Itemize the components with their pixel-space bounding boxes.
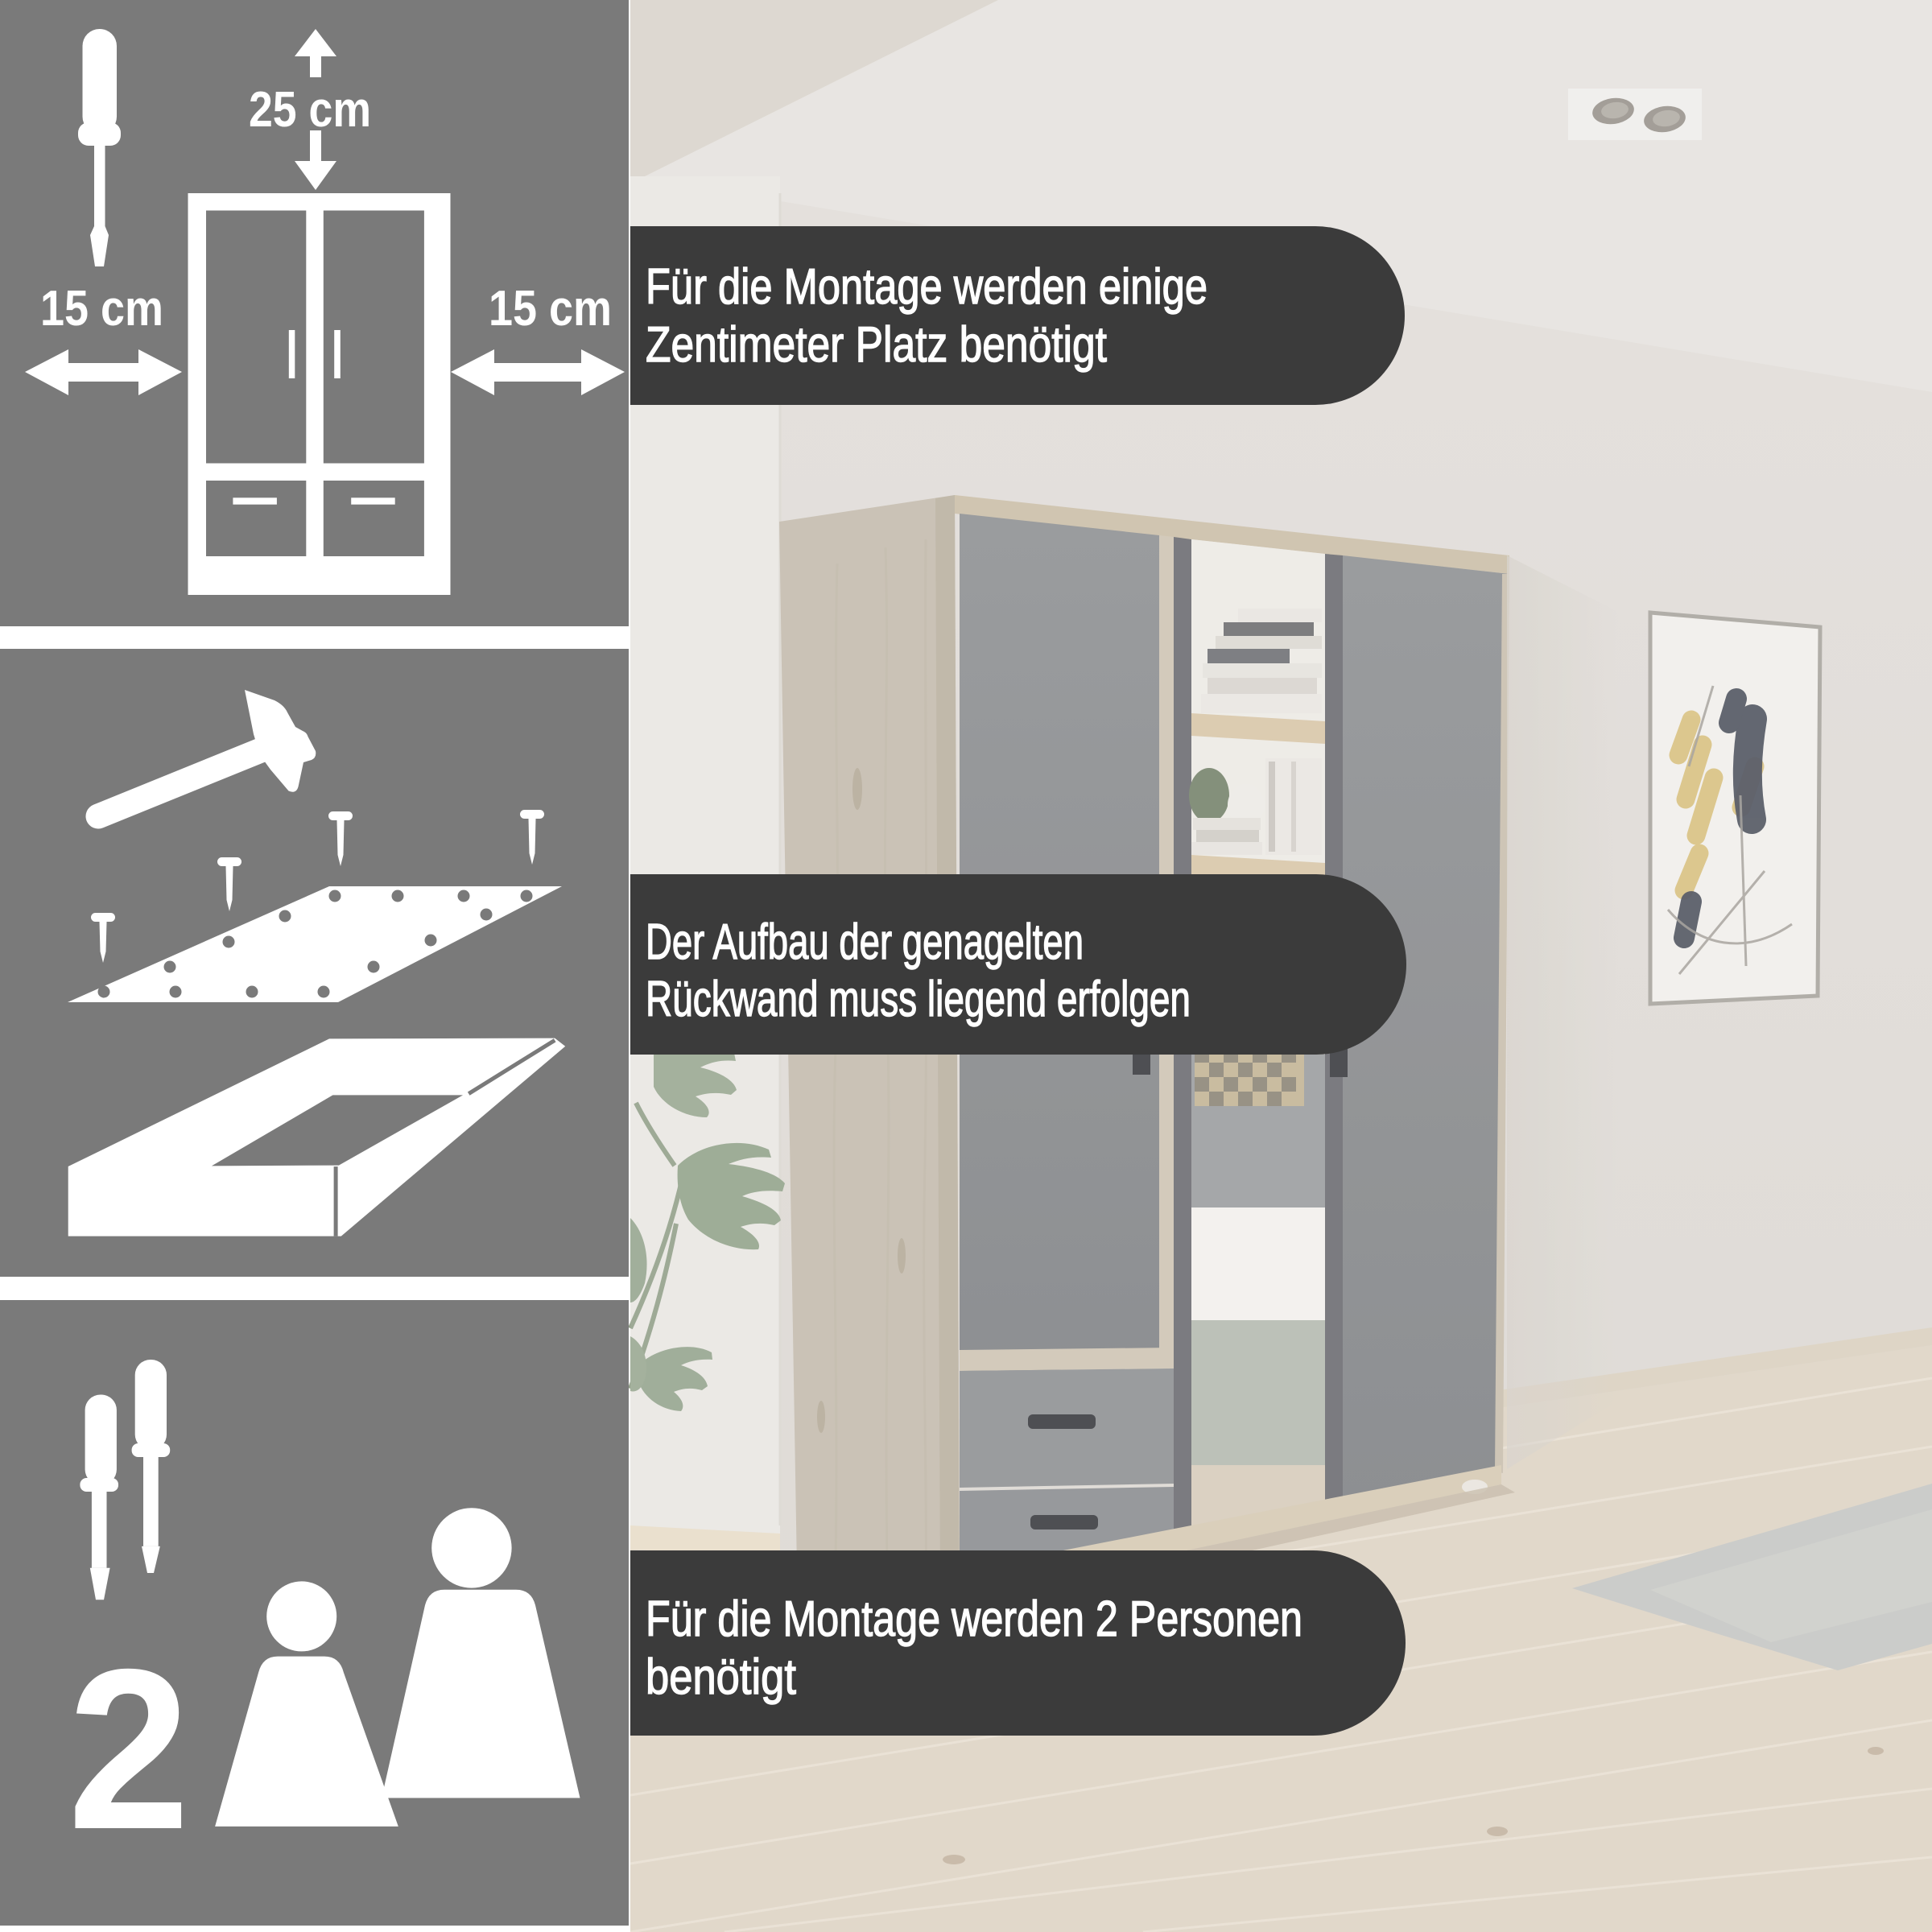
svg-text:Für die Montage werden 2 Perso: Für die Montage werden 2 Personen bbox=[646, 1591, 1302, 1647]
svg-text:Rückwand muss liegend erfolgen: Rückwand muss liegend erfolgen bbox=[646, 972, 1191, 1027]
svg-text:benötigt: benötigt bbox=[646, 1649, 796, 1705]
svg-text:Für die Montage werden einige: Für die Montage werden einige bbox=[646, 259, 1207, 315]
svg-text:15 cm: 15 cm bbox=[489, 281, 612, 336]
svg-text:15 cm: 15 cm bbox=[40, 281, 163, 336]
svg-text:25 cm: 25 cm bbox=[249, 82, 371, 138]
svg-text:Zentimeter Platz benötigt: Zentimeter Platz benötigt bbox=[646, 317, 1107, 373]
svg-text:Der Aufbau der genagelten: Der Aufbau der genagelten bbox=[646, 914, 1084, 970]
svg-text:2: 2 bbox=[68, 1622, 190, 1877]
